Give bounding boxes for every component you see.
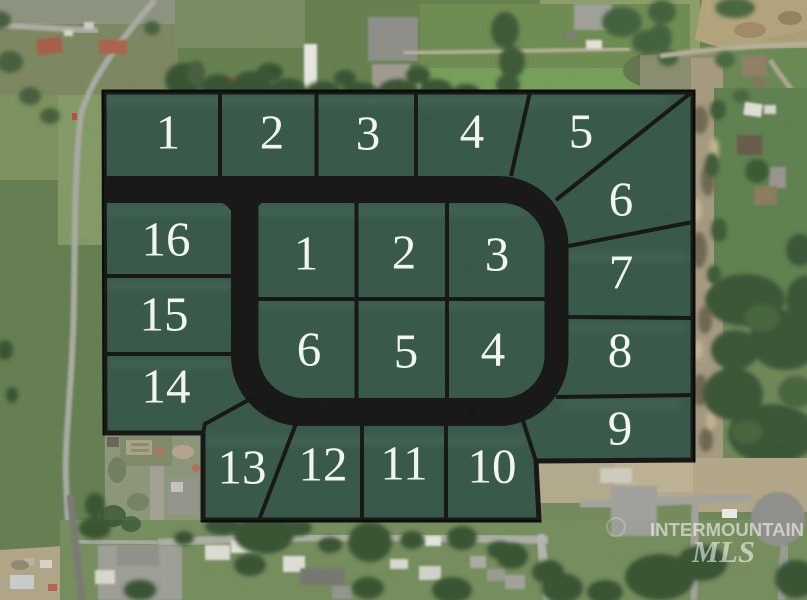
- svg-text:1: 1: [294, 226, 319, 281]
- svg-text:10: 10: [468, 439, 517, 494]
- svg-text:11: 11: [380, 436, 427, 491]
- svg-text:6: 6: [609, 172, 634, 227]
- svg-text:13: 13: [218, 440, 267, 495]
- svg-text:MLS: MLS: [691, 534, 755, 569]
- svg-text:2: 2: [392, 225, 417, 280]
- svg-text:7: 7: [609, 245, 634, 300]
- svg-text:3: 3: [356, 106, 381, 161]
- svg-text:4: 4: [460, 104, 485, 159]
- svg-text:16: 16: [142, 212, 191, 267]
- svg-text:1: 1: [156, 105, 181, 160]
- svg-text:8: 8: [608, 323, 633, 378]
- svg-text:15: 15: [140, 287, 189, 342]
- svg-text:5: 5: [569, 104, 594, 159]
- svg-text:14: 14: [142, 359, 191, 414]
- svg-text:4: 4: [481, 322, 506, 377]
- svg-text:6: 6: [297, 322, 322, 377]
- svg-text:5: 5: [394, 324, 419, 379]
- svg-text:12: 12: [299, 437, 348, 492]
- svg-text:9: 9: [608, 401, 633, 456]
- svg-text:3: 3: [485, 227, 510, 282]
- svg-text:2: 2: [260, 105, 285, 160]
